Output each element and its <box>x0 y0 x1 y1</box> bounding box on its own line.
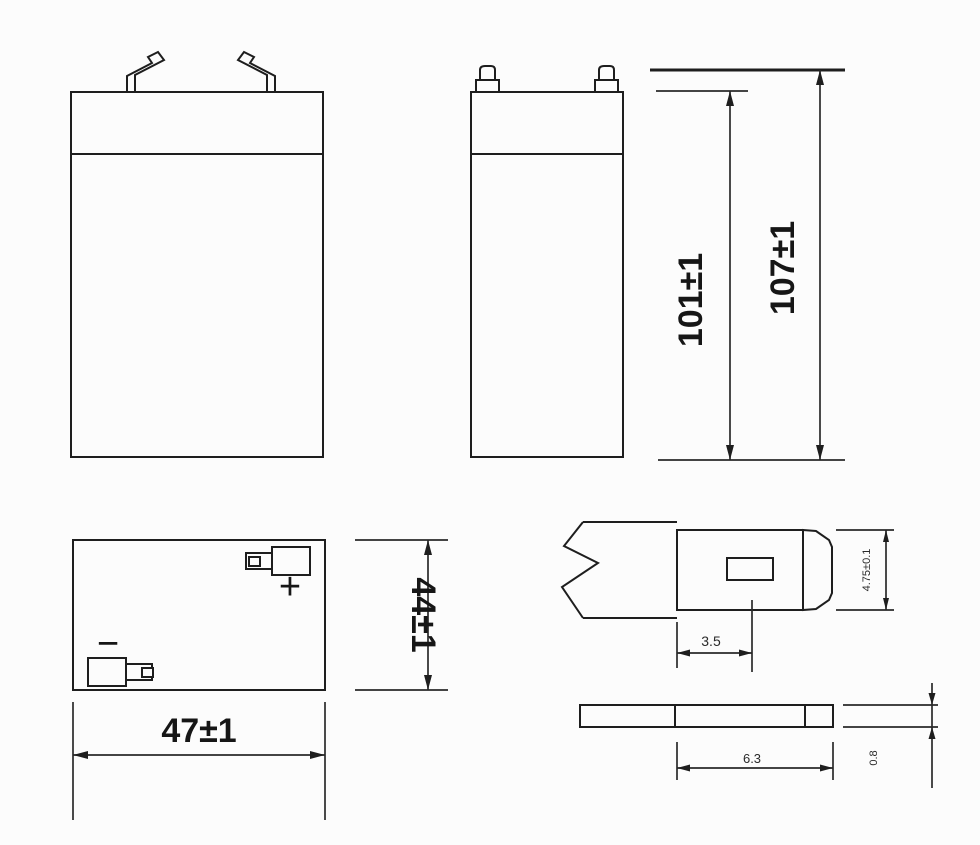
side-view-left-terminal <box>476 66 499 92</box>
dim-tab-width: 4.75±0.1 <box>836 530 894 610</box>
side-view-case-outline <box>471 92 623 457</box>
tab-tip <box>803 530 832 610</box>
front-view-case-outline <box>71 92 323 457</box>
tab-body <box>677 530 803 610</box>
dim-slot-offset-label: 3.5 <box>701 633 721 649</box>
break-line-zigzag <box>562 522 598 618</box>
terminal-side-view <box>580 705 833 727</box>
dim-case-height: 101±1 <box>672 91 734 460</box>
top-view: + − 44±1 47±1 <box>73 540 448 820</box>
side-view: 101±1 107±1 <box>471 66 845 460</box>
front-view <box>71 52 323 457</box>
front-view-right-terminal-tab <box>238 52 275 92</box>
drawing-svg: 101±1 107±1 + − <box>0 0 980 845</box>
tab-slot <box>727 558 773 580</box>
dim-overall-height: 107±1 <box>764 70 824 460</box>
dim-width-label: 47±1 <box>161 712 236 750</box>
dim-tab-width-label: 4.75±0.1 <box>861 549 873 592</box>
dim-overall-height-label: 107±1 <box>764 221 802 315</box>
dim-tab-thickness-label: 0.8 <box>868 750 880 765</box>
positive-sign: + <box>279 566 301 608</box>
negative-sign: − <box>97 623 119 665</box>
dim-depth-label: 44±1 <box>404 577 442 652</box>
dim-tab-length-label: 6.3 <box>743 751 761 766</box>
dim-tab-length: 6.3 <box>677 742 833 780</box>
battery-dimension-drawing: 101±1 107±1 + − <box>0 0 980 845</box>
dim-tab-thickness: 0.8 <box>843 683 938 788</box>
front-view-left-terminal-tab <box>127 52 164 92</box>
terminal-detail: 4.75±0.1 3.5 6.3 <box>562 522 938 788</box>
dim-width: 47±1 <box>73 702 325 820</box>
dim-depth: 44±1 <box>355 540 448 690</box>
dim-case-height-label: 101±1 <box>672 253 710 347</box>
side-view-right-terminal <box>595 66 618 92</box>
terminal-plan-view <box>562 522 832 618</box>
